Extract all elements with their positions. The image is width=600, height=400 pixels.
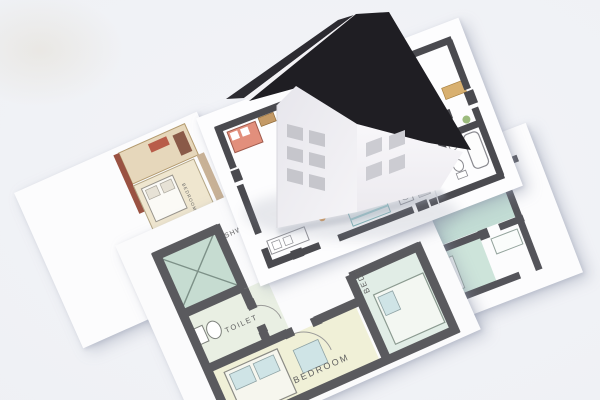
photo-scene: BEDROOM GARG	[0, 0, 600, 400]
sofa	[354, 102, 382, 122]
toilet	[452, 158, 466, 173]
sink	[448, 141, 458, 151]
